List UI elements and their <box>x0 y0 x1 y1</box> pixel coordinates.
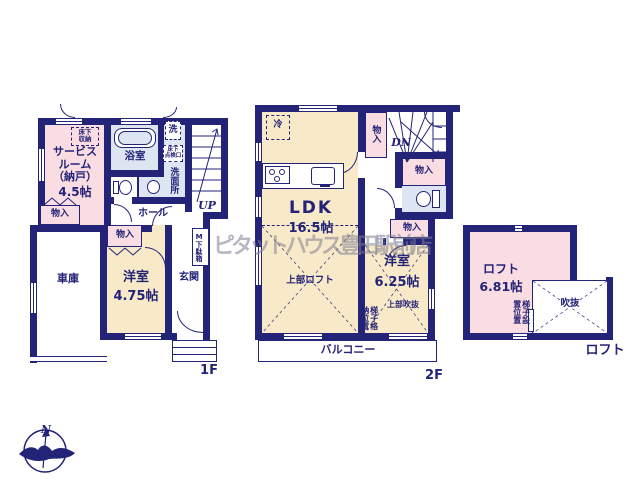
service-room-label: サービス ルーム （納戸） <box>45 146 105 184</box>
floor2-label: 2F <box>418 369 450 384</box>
wall <box>463 333 613 340</box>
toilet-tank-icon <box>432 190 440 208</box>
window <box>388 333 428 340</box>
stairs-up-icon <box>192 125 221 205</box>
shoe-cabinet-label: M下駄箱 <box>195 230 203 265</box>
entrance-steps <box>172 340 217 362</box>
closet-label: 物入 <box>108 230 142 240</box>
underfloor-hatch-label: 床下 点検口 <box>163 147 183 160</box>
door-arc <box>177 311 203 333</box>
wall <box>111 170 164 177</box>
door-gap <box>395 188 402 208</box>
balcony-label: バルコニー <box>303 344 393 357</box>
upper-loft-label: 上部ロフト <box>285 276 335 287</box>
western-room-2f-size: 6.25帖 <box>371 276 423 291</box>
sink-icon <box>311 167 335 185</box>
hatch-gap <box>512 333 528 340</box>
window <box>255 142 262 162</box>
underfloor-storage-label: 床下 収納 <box>72 129 98 144</box>
wall <box>104 118 111 232</box>
loft-room-size: 6.81帖 <box>478 280 524 294</box>
loft-room-label: ロフト <box>482 263 520 277</box>
door-arc <box>60 104 75 118</box>
wall <box>30 225 107 232</box>
door-gap <box>114 197 132 204</box>
ladder-storage-label: 梯子格納位置 <box>360 303 378 332</box>
faucet-icon <box>320 185 330 187</box>
step-line <box>173 347 216 348</box>
window <box>124 333 162 340</box>
wall <box>221 118 228 212</box>
open-ceiling-2f-label: 上部吹抜 <box>381 300 425 309</box>
wall <box>255 105 262 340</box>
western-room-1f-size: 4.75帖 <box>110 290 162 305</box>
closet-label: 物入 <box>42 209 78 219</box>
bathroom-label: 浴室 <box>117 150 153 162</box>
wall <box>165 225 172 333</box>
wall <box>255 105 460 112</box>
western-room-1f-label: 洋室 <box>114 271 158 286</box>
window <box>298 105 338 112</box>
partition-line <box>137 177 139 197</box>
door-arc <box>163 107 177 118</box>
compass-icon: N <box>13 418 79 476</box>
ldk-label: LDK <box>283 199 339 219</box>
washroom-label: 洗面所 <box>168 163 178 197</box>
wall <box>395 152 402 219</box>
compass-ornament <box>19 446 75 461</box>
window <box>38 148 45 182</box>
toilet-bowl-icon <box>119 180 132 195</box>
door-gap <box>358 152 365 178</box>
wall <box>463 225 470 340</box>
basin-icon <box>147 180 160 194</box>
closet-label: 物入 <box>370 120 380 148</box>
hall-label: ホール <box>134 208 172 220</box>
wall-notch <box>514 225 523 232</box>
floor1-label: 1F <box>194 364 224 379</box>
stairs-up-label: UP <box>192 200 222 213</box>
watermark: ピタットハウス豊田駅前店 <box>213 228 445 260</box>
wall <box>395 212 453 219</box>
washer-label: 洗 <box>166 125 180 135</box>
door-arc <box>377 188 395 208</box>
door-arc <box>114 204 132 222</box>
wall <box>570 225 577 287</box>
ladder-position-label: 梯子設置位置 <box>512 297 530 326</box>
stairs-down-label: DN <box>388 137 414 150</box>
window <box>55 118 83 125</box>
burner <box>269 169 275 175</box>
garage-label: 車庫 <box>52 273 84 286</box>
loft-floor-label: ロフト <box>583 344 627 359</box>
window <box>30 282 37 314</box>
window <box>428 288 435 310</box>
window <box>120 118 152 125</box>
burner <box>279 169 285 175</box>
step-line <box>173 354 216 355</box>
service-room-size: 4.5帖 <box>48 186 102 200</box>
garage-door <box>30 356 107 362</box>
window <box>283 333 323 340</box>
bathtub-inner <box>118 131 152 145</box>
folding-door-icon <box>109 247 141 255</box>
wall <box>446 105 453 219</box>
door-gap <box>177 333 203 340</box>
toilet-bowl-icon <box>416 191 431 207</box>
floorplan-canvas: 物入 物入 M下駄箱 床下 収納 サービス ルーム （納戸） 4.5帖 浴室 洗… <box>0 0 640 480</box>
wall <box>100 225 107 340</box>
refrigerator-label: 冷 <box>268 120 288 130</box>
entrance-label: 玄関 <box>176 272 202 284</box>
closet-label: 物入 <box>406 166 442 176</box>
void-label: 吹抜 <box>556 299 584 310</box>
window <box>255 196 262 218</box>
burner <box>274 176 280 182</box>
